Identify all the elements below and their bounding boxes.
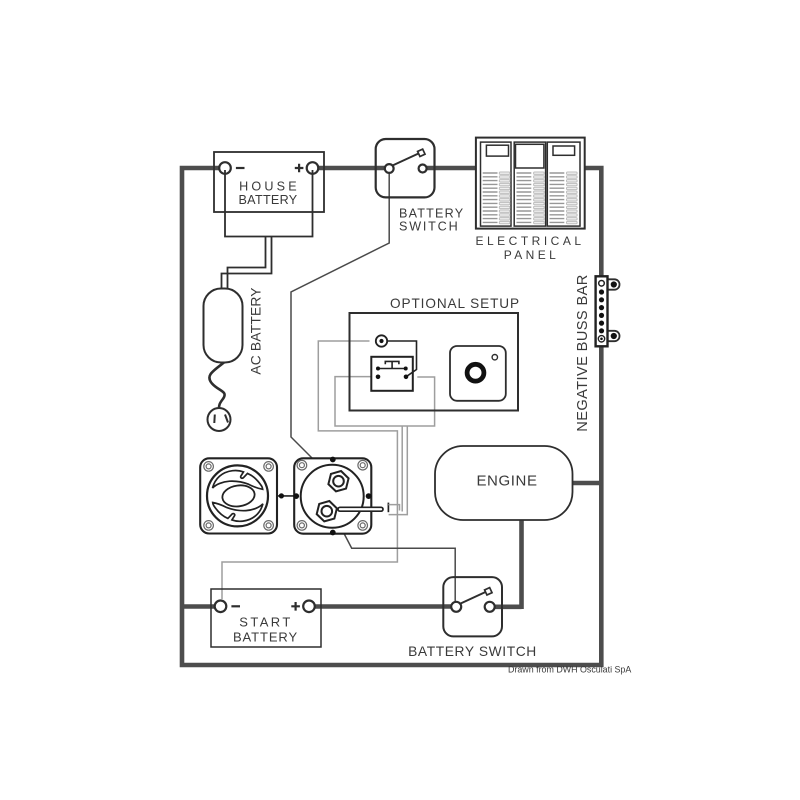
svg-text:ENGINE: ENGINE [476, 473, 537, 490]
svg-text:BATTERY: BATTERY [233, 630, 298, 645]
svg-text:BATTERY SWITCH: BATTERY SWITCH [408, 644, 537, 659]
svg-text:SWITCH: SWITCH [399, 220, 459, 234]
svg-text:PANEL: PANEL [504, 248, 559, 262]
svg-text:AC BATTERY: AC BATTERY [249, 287, 264, 374]
svg-text:Drawn from DWH Osculati SpA: Drawn from DWH Osculati SpA [508, 665, 631, 675]
svg-text:ELECTRICAL: ELECTRICAL [475, 234, 584, 248]
svg-text:START: START [239, 615, 292, 630]
svg-text:OPTIONAL SETUP: OPTIONAL SETUP [390, 296, 520, 311]
svg-text:BATTERY: BATTERY [238, 193, 297, 207]
svg-text:NEGATIVE BUSS BAR: NEGATIVE BUSS BAR [575, 274, 591, 431]
svg-text:BATTERY: BATTERY [399, 207, 464, 221]
svg-text:HOUSE: HOUSE [239, 180, 300, 194]
